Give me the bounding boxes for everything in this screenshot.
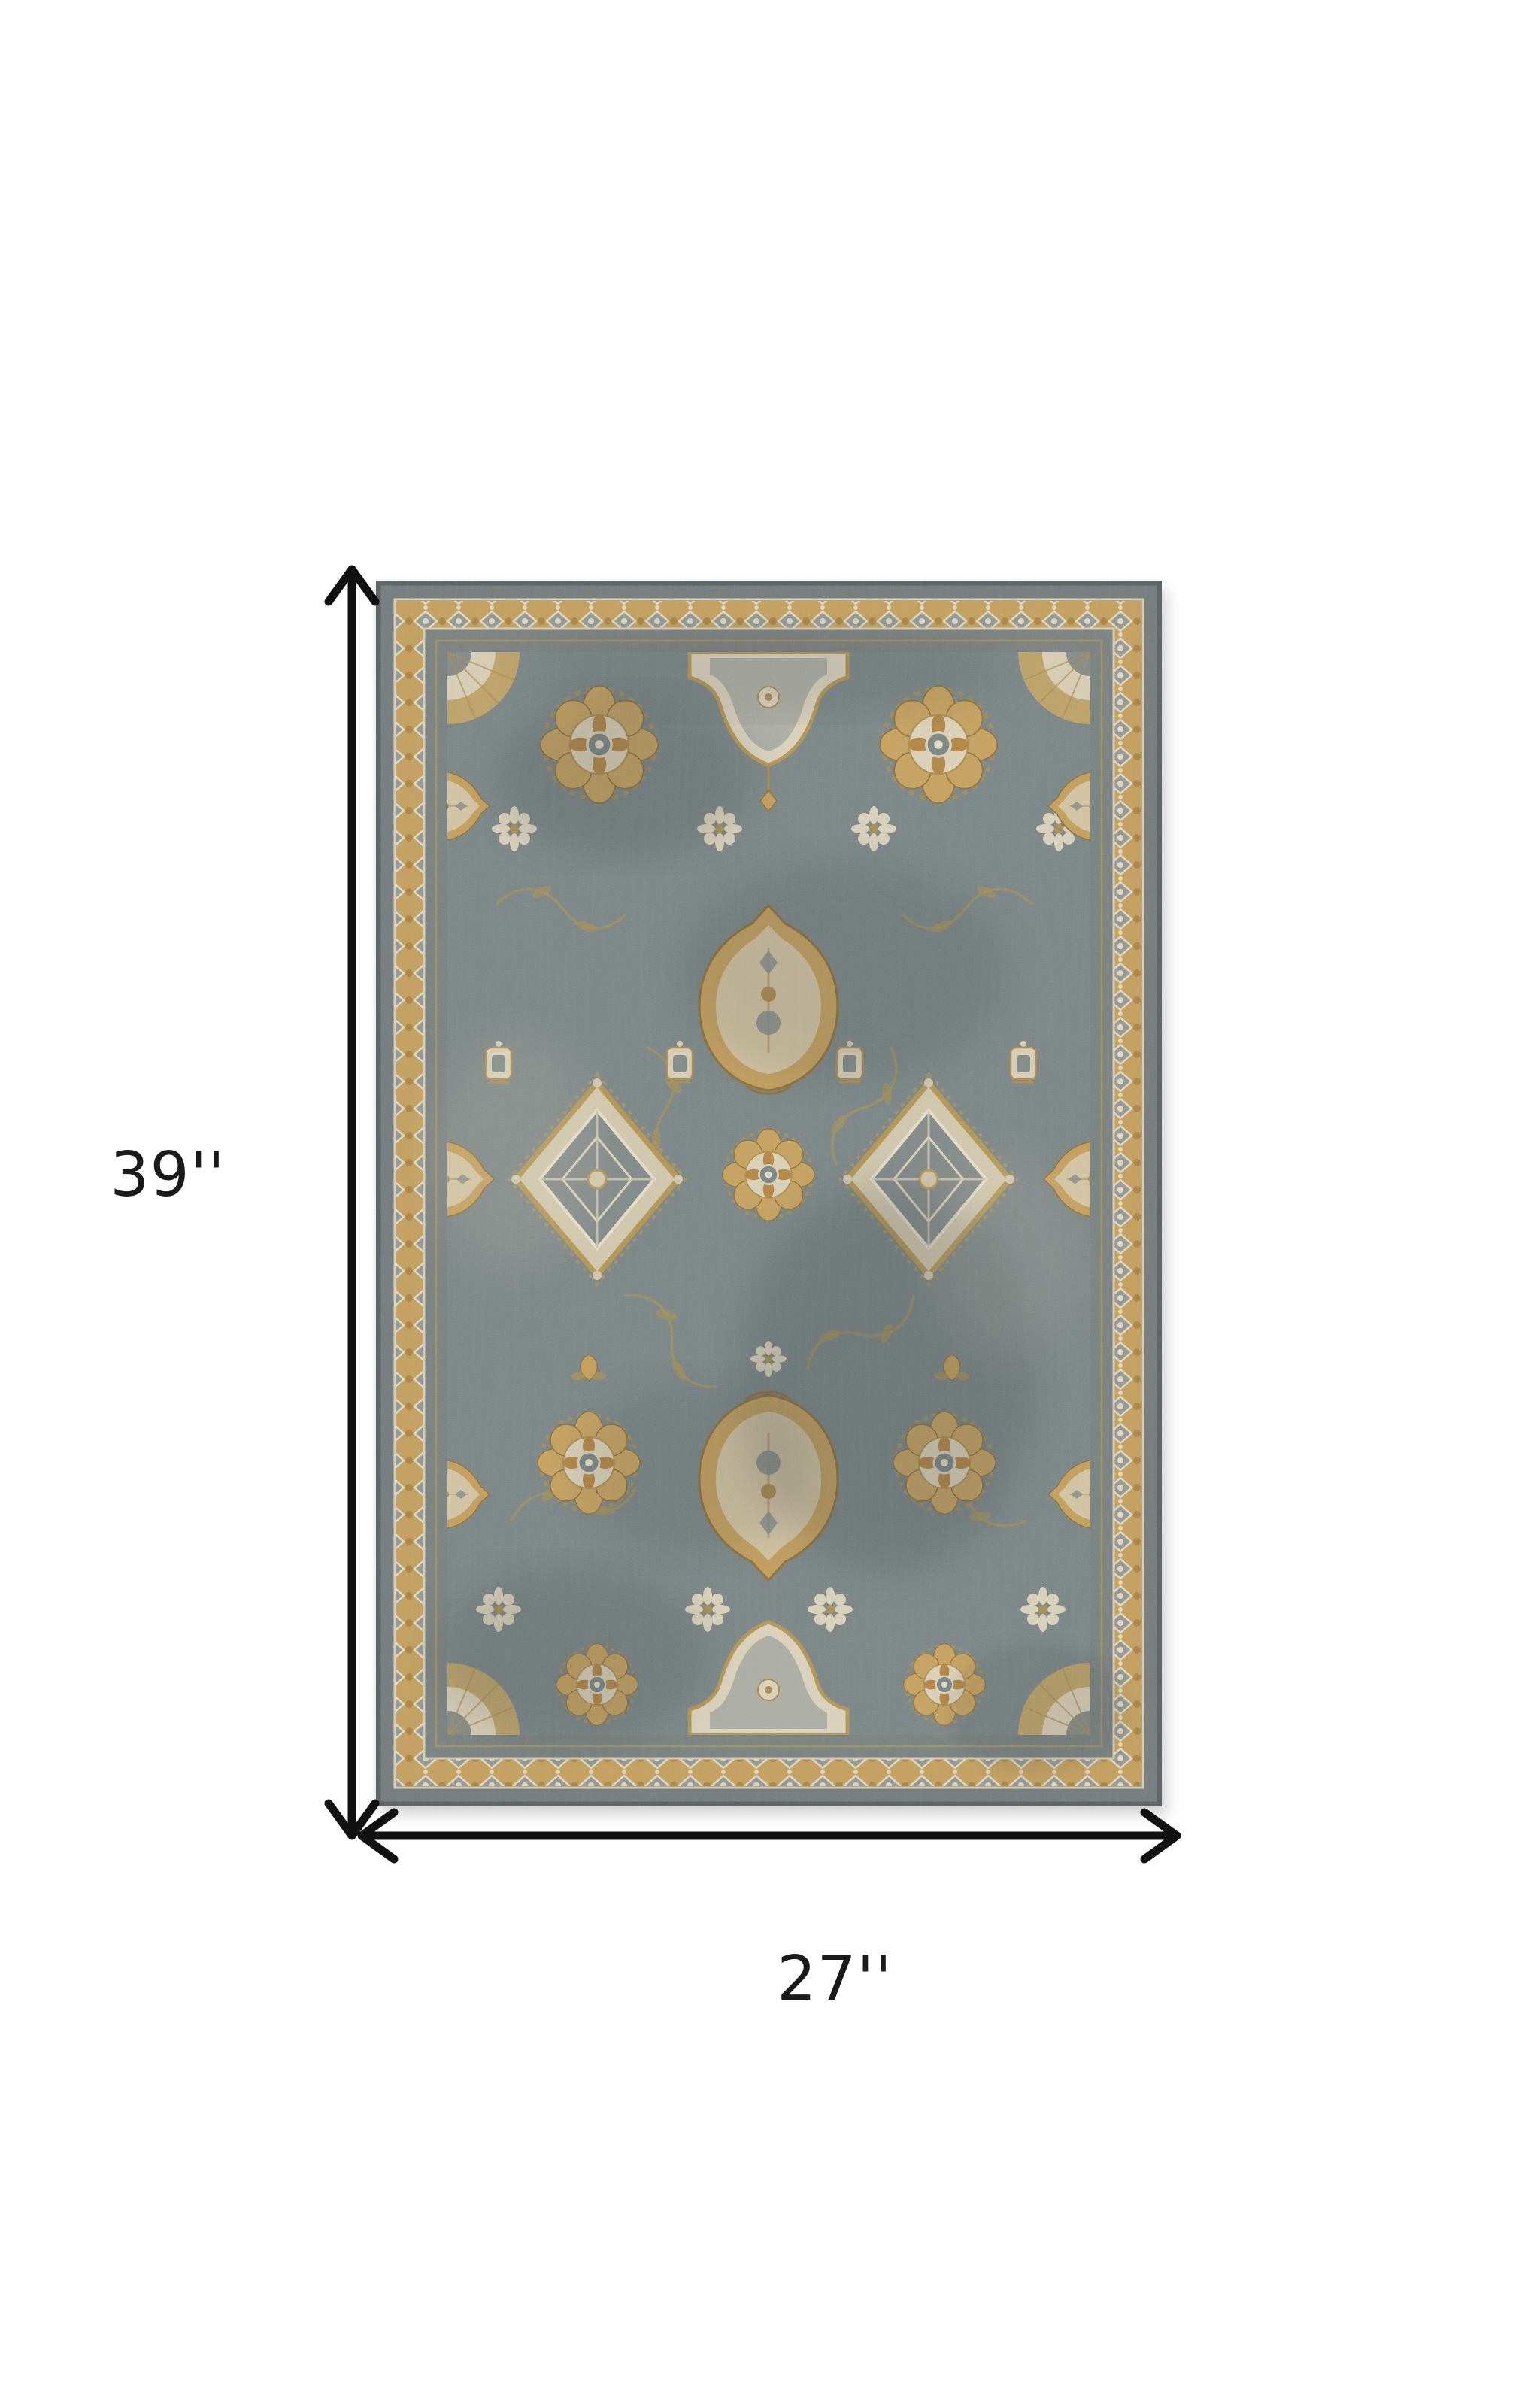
height-dimension-arrow bbox=[329, 569, 375, 1836]
width-dimension-label: 27'' bbox=[777, 1949, 892, 2010]
width-dimension-arrow bbox=[362, 1812, 1177, 1859]
arrowhead-up-icon bbox=[329, 569, 375, 602]
arrowhead-left-icon bbox=[362, 1812, 394, 1859]
rug-illustration bbox=[376, 581, 1162, 1806]
arrowhead-down-icon bbox=[329, 1803, 375, 1836]
rug-product-photo bbox=[376, 581, 1162, 1806]
arrowhead-right-icon bbox=[1144, 1812, 1177, 1859]
height-dimension-label: 39'' bbox=[110, 1145, 225, 1206]
wool-texture bbox=[376, 581, 1162, 1806]
page-background: 39'' 27'' bbox=[0, 0, 1540, 2393]
